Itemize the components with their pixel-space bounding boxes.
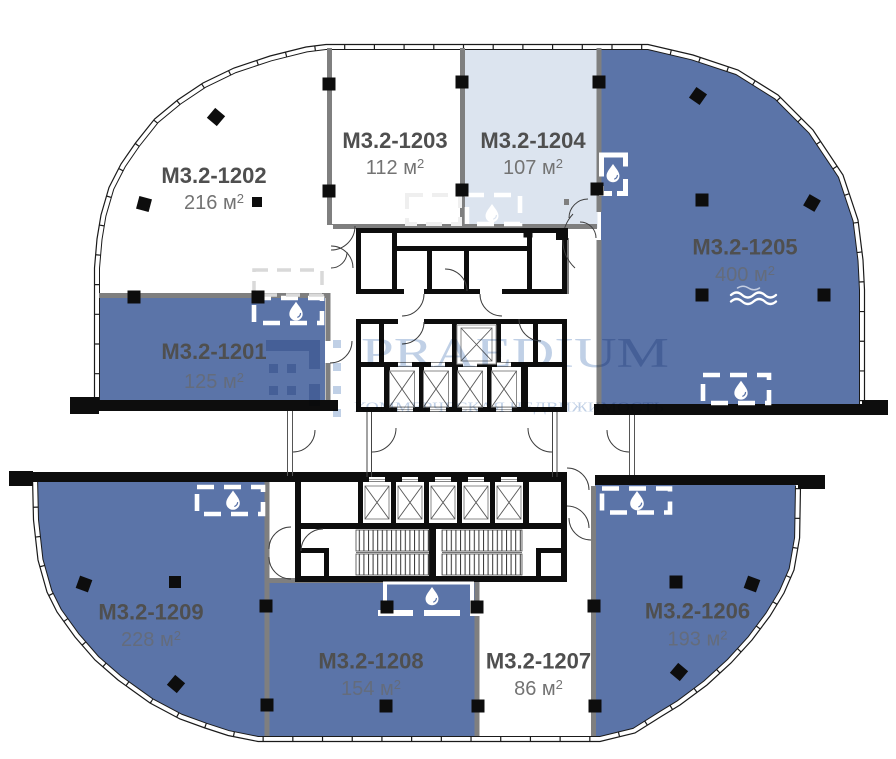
- svg-text:112 м2: 112 м2: [366, 156, 424, 179]
- svg-text:228 м2: 228 м2: [121, 628, 181, 651]
- svg-text:M3.2-1201: M3.2-1201: [161, 339, 266, 364]
- svg-text:M3.2-1203: M3.2-1203: [342, 128, 447, 153]
- svg-text:M3.2-1204: M3.2-1204: [480, 128, 586, 153]
- svg-text:M3.2-1209: M3.2-1209: [98, 600, 203, 625]
- svg-text:КОММЕРЧЕСКАЯ НЕДВИЖИМОСТЬ: КОММЕРЧЕСКАЯ НЕДВИЖИМОСТЬ: [354, 400, 664, 415]
- svg-text:107 м2: 107 м2: [503, 156, 563, 179]
- svg-text:154 м2: 154 м2: [341, 677, 401, 700]
- svg-text:193 м2: 193 м2: [668, 628, 728, 651]
- svg-text:125 м2: 125 м2: [184, 370, 244, 393]
- svg-text:M3.2-1202: M3.2-1202: [161, 163, 266, 188]
- svg-text:PRAEDIUM: PRAEDIUM: [361, 331, 669, 377]
- svg-text:M3.2-1205: M3.2-1205: [692, 235, 797, 260]
- svg-text:M3.2-1208: M3.2-1208: [318, 649, 423, 674]
- svg-text:86 м2: 86 м2: [514, 677, 563, 700]
- svg-text:400 м2: 400 м2: [715, 263, 775, 286]
- svg-text:216 м2: 216 м2: [184, 191, 244, 214]
- svg-text:M3.2-1206: M3.2-1206: [645, 599, 750, 624]
- svg-text:M3.2-1207: M3.2-1207: [486, 649, 591, 674]
